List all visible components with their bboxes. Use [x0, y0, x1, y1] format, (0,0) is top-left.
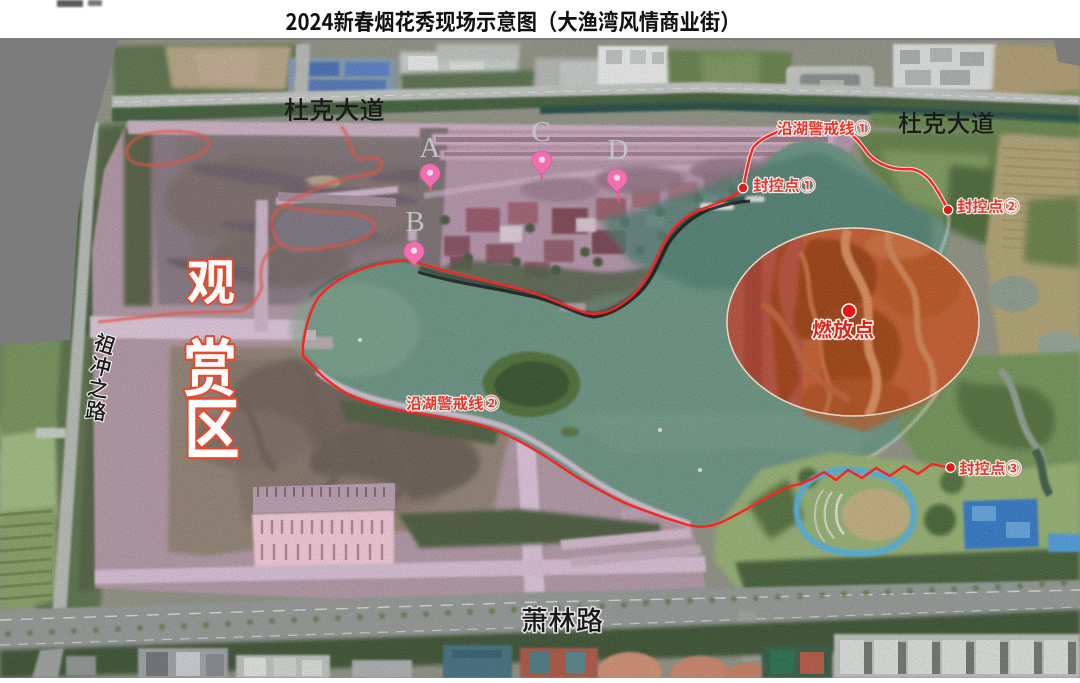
svg-text:A: A — [420, 132, 441, 164]
svg-text:B: B — [405, 206, 424, 238]
svg-text:D: D — [608, 134, 629, 166]
svg-text:C: C — [531, 116, 550, 148]
